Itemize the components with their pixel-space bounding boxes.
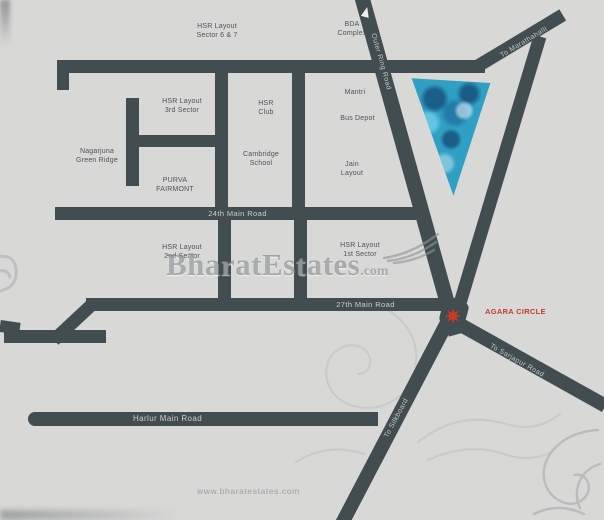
road-cross-street-2 bbox=[292, 66, 305, 214]
watermark-wing-icon bbox=[382, 228, 440, 264]
website-url: www.bharatestates.com bbox=[197, 486, 300, 496]
watermark-fragment-icon bbox=[0, 249, 28, 295]
road-connector bbox=[136, 135, 218, 147]
corner-shading bbox=[0, 0, 10, 46]
area-label-hsr-club: HSR Club bbox=[244, 99, 288, 117]
road-top-horizontal bbox=[57, 60, 485, 73]
site-location-triangle bbox=[410, 77, 492, 197]
area-label-purva-fairmont: PURVA FAIRMONT bbox=[142, 176, 208, 194]
area-label-jain-layout: Jain Layout bbox=[329, 160, 375, 178]
area-label-nagarjuna-green-ridge: Nagarjuna Green Ridge bbox=[60, 147, 134, 165]
area-label-mantri: Mantri bbox=[330, 88, 380, 97]
road-label-to-marathahalli: To Marathahalli bbox=[487, 18, 561, 66]
watermark-brand: BharatEstates.com bbox=[166, 247, 389, 283]
decorative-flourish-corner bbox=[514, 424, 604, 520]
area-label-cambridge-school: Cambridge School bbox=[231, 150, 291, 168]
bottom-edge-shading bbox=[0, 510, 180, 520]
location-map: Outer Ring Road To Marathahalli 24th Mai… bbox=[0, 0, 604, 520]
road-west-edge-stub bbox=[0, 320, 21, 335]
road-label-harlur-main: Harlur Main Road bbox=[100, 414, 235, 423]
area-label-bus-depot: Bus Depot bbox=[330, 114, 385, 123]
agara-circle-star-icon bbox=[444, 307, 462, 325]
road-label-24th-main: 24th Main Road bbox=[190, 209, 285, 218]
road-inner-diagonal bbox=[450, 35, 546, 318]
agara-circle-label: AGARA CIRCLE bbox=[485, 307, 546, 316]
area-label-hsr-sector-6-7: HSR Layout Sector 6 & 7 bbox=[172, 22, 262, 40]
road-label-27th-main: 27th Main Road bbox=[318, 300, 413, 309]
area-label-hsr-3rd-sector: HSR Layout 3rd Sector bbox=[148, 97, 216, 115]
road-top-left-stub bbox=[57, 60, 69, 90]
